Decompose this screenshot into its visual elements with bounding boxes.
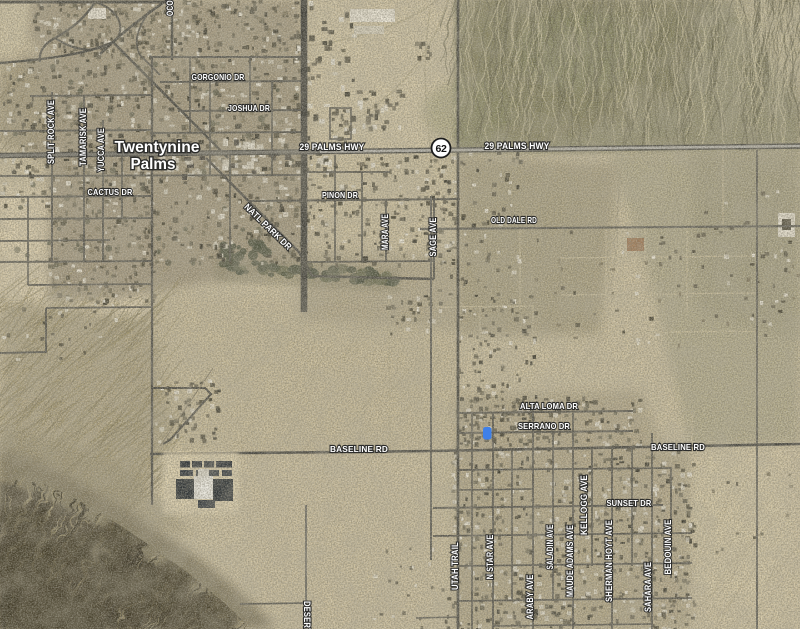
svg-text:SHERMAN HOYT AVE: SHERMAN HOYT AVE: [604, 520, 614, 602]
svg-text:MAUDE ADAMS AVE: MAUDE ADAMS AVE: [565, 525, 575, 597]
svg-text:N STAR AVE: N STAR AVE: [485, 535, 495, 580]
svg-text:ARABY AVE: ARABY AVE: [525, 575, 535, 620]
svg-text:SALADIN AVE: SALADIN AVE: [545, 525, 555, 570]
svg-text:DESERT QUEEN: DESERT QUEEN: [302, 601, 312, 629]
svg-text:SPLIT ROCK AVE: SPLIT ROCK AVE: [46, 100, 56, 164]
svg-text:ALTA LOMA DR: ALTA LOMA DR: [520, 401, 578, 411]
svg-text:Palms: Palms: [131, 156, 176, 173]
svg-text:BASELINE RD: BASELINE RD: [330, 444, 388, 454]
svg-text:YUCCA AVE: YUCCA AVE: [96, 128, 106, 172]
svg-text:UTAH TRAIL: UTAH TRAIL: [450, 542, 460, 590]
svg-text:SERRANO DR: SERRANO DR: [518, 421, 570, 431]
svg-text:PINON DR: PINON DR: [322, 190, 358, 200]
svg-text:62: 62: [435, 143, 447, 155]
svg-text:JOSHUA DR: JOSHUA DR: [228, 103, 270, 113]
svg-text:OCOTILLO DR: OCOTILLO DR: [165, 0, 175, 16]
svg-text:SAHARA AVE: SAHARA AVE: [643, 562, 653, 612]
svg-text:OLD DALE RD: OLD DALE RD: [491, 215, 537, 225]
svg-text:BASELINE RD: BASELINE RD: [651, 442, 705, 452]
svg-text:SAGE AVE: SAGE AVE: [428, 218, 438, 257]
svg-text:TAMARISK AVE: TAMARISK AVE: [78, 108, 88, 166]
svg-text:SUNSET DR: SUNSET DR: [607, 498, 652, 508]
svg-text:29 PALMS HWY: 29 PALMS HWY: [300, 142, 365, 152]
svg-text:29 PALMS HWY: 29 PALMS HWY: [485, 141, 550, 151]
svg-text:GORGONIO DR: GORGONIO DR: [192, 72, 245, 82]
svg-text:BEDOUIN AVE: BEDOUIN AVE: [663, 520, 673, 575]
svg-text:KELLOGG AVE: KELLOGG AVE: [579, 475, 589, 535]
svg-text:CACTUS DR: CACTUS DR: [88, 187, 133, 197]
svg-text:Twentynine: Twentynine: [115, 139, 200, 156]
svg-text:MARA AVE: MARA AVE: [380, 214, 390, 250]
